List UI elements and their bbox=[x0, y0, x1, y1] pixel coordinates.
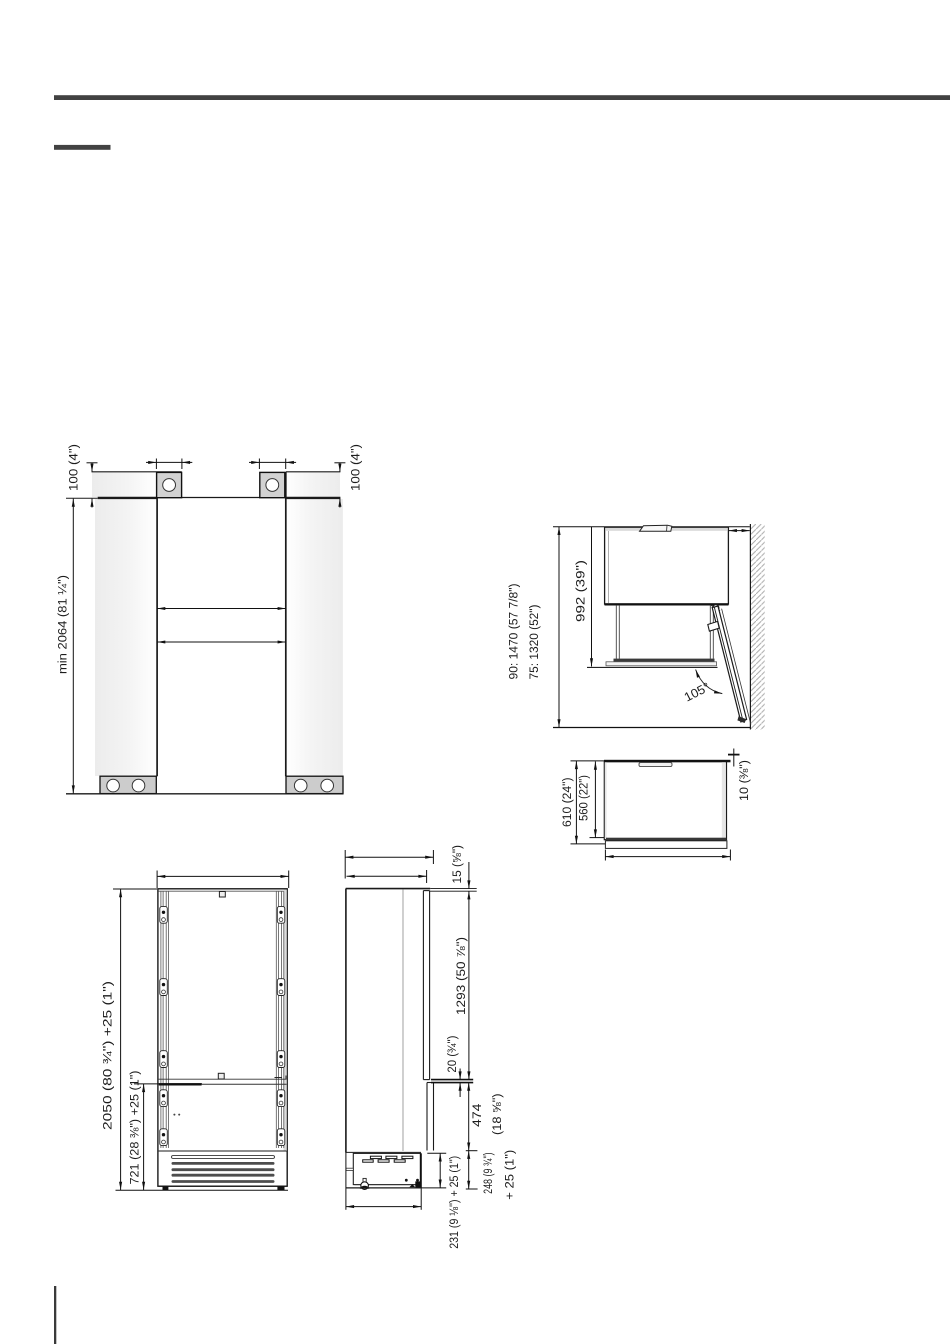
svg-text:2050 (80 ¾") +25 (1"): 2050 (80 ¾") +25 (1") bbox=[100, 981, 114, 1130]
svg-text:1293 (50 ⅞"): 1293 (50 ⅞") bbox=[454, 937, 468, 1015]
svg-text:15 (⅝"): 15 (⅝") bbox=[450, 845, 464, 884]
svg-text:560 (22"): 560 (22") bbox=[576, 775, 590, 821]
svg-text:10 (⅜"): 10 (⅜") bbox=[737, 760, 751, 801]
svg-text:75: 1320 (52"): 75: 1320 (52") bbox=[527, 605, 541, 680]
svg-text:100 (4"): 100 (4") bbox=[349, 444, 363, 491]
svg-text:992 (39"): 992 (39") bbox=[574, 560, 588, 622]
svg-text:+ 25 (1"): + 25 (1") bbox=[503, 1150, 517, 1200]
svg-text:20 (¾"): 20 (¾") bbox=[445, 1036, 459, 1073]
svg-text:721 (28 ⅜") +25 (1"): 721 (28 ⅜") +25 (1") bbox=[127, 1071, 141, 1185]
svg-text:610 (24"): 610 (24") bbox=[560, 778, 574, 828]
svg-text:248 (9 ¾"): 248 (9 ¾") bbox=[481, 1152, 495, 1194]
svg-text:(18 ⅝"): (18 ⅝") bbox=[490, 1094, 504, 1136]
svg-text:100 (4"): 100 (4") bbox=[67, 444, 81, 491]
svg-text:231 (9 ⅛") + 25 (1"): 231 (9 ⅛") + 25 (1") bbox=[447, 1156, 461, 1249]
svg-text:90: 1470 (57 7/8"): 90: 1470 (57 7/8") bbox=[507, 584, 521, 680]
svg-text:105°: 105° bbox=[682, 680, 712, 705]
svg-text:min 2064 (81 ¼"): min 2064 (81 ¼") bbox=[56, 575, 70, 674]
svg-text:474: 474 bbox=[470, 1103, 484, 1127]
